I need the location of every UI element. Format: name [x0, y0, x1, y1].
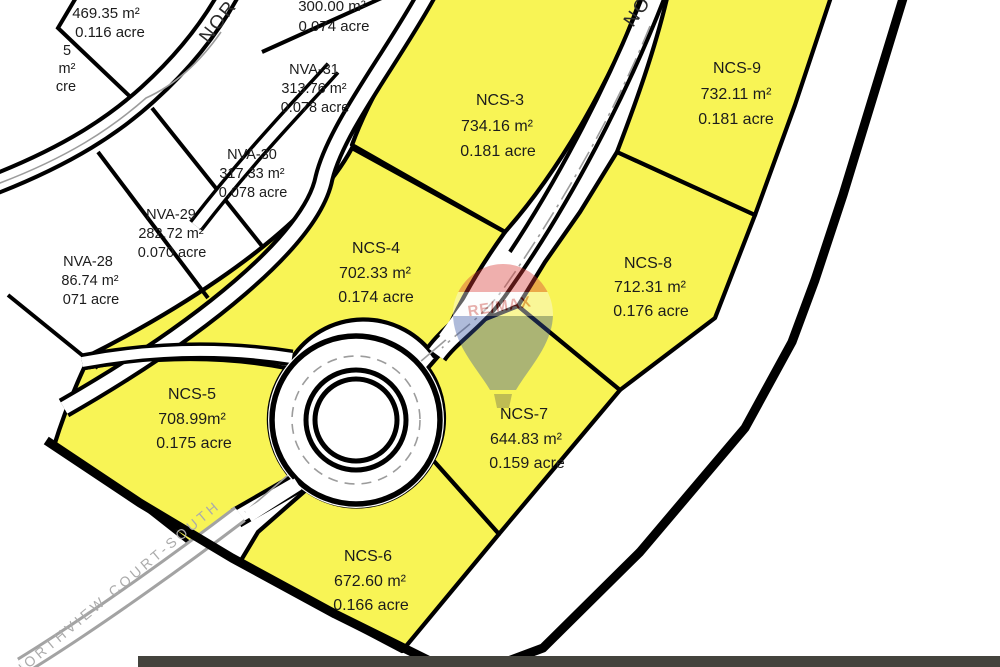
lot-ncs9-acreage: 0.181 acre [698, 111, 774, 128]
lot-nva30-id: NVA-30 [227, 147, 277, 163]
lot-nva30-area: 317.33 m² [219, 166, 284, 182]
lot-ncs8-acreage: 0.176 acre [613, 303, 689, 320]
plat-map-canvas: NOR NO NORTHVIEW COURT-SOUTH 5 m² cre 46… [0, 0, 1000, 667]
lot-ncs8-id: NCS-8 [624, 255, 672, 272]
lot-label-fragment-3: cre [56, 79, 76, 95]
lot-ncs5-acreage: 0.175 acre [156, 435, 232, 452]
lot-nva29-area: 282.72 m² [138, 226, 203, 242]
balloon-basket [494, 394, 512, 408]
lot-ncs3-acreage: 0.181 acre [460, 143, 536, 160]
lot-nva29-acreage: 0.070 acre [138, 245, 207, 261]
lot-ncs5-id: NCS-5 [168, 386, 216, 403]
lot-ncs8-area: 712.31 m² [614, 279, 687, 296]
lot-label-fragment-2: m² [59, 61, 76, 77]
lot-ncs9-id: NCS-9 [713, 60, 761, 77]
roundabout-island-inner [315, 379, 397, 461]
lot-300-acreage: 0.074 acre [299, 18, 370, 35]
lot-ncs6-id: NCS-6 [344, 548, 392, 565]
lot-ncs7-acreage: 0.159 acre [489, 455, 565, 472]
lot-300-area: 300.00 m² [298, 0, 366, 15]
lot-ncs9-area: 732.11 m² [701, 86, 773, 103]
lot-ncs7-area: 644.83 m² [490, 431, 563, 448]
lot-ncs5-area: 708.99m² [158, 411, 226, 428]
lot-nva30-acreage: 0.078 acre [219, 185, 288, 201]
lot-ncs6-acreage: 0.166 acre [333, 597, 409, 614]
lot-ncs6-area: 672.60 m² [334, 573, 407, 590]
lot-nva31-acreage: 0.078 acre [281, 100, 350, 116]
plat-map: NOR NO NORTHVIEW COURT-SOUTH 5 m² cre 46… [0, 0, 1000, 667]
lot-nva28-acreage: 071 acre [63, 292, 119, 308]
lot-469-acreage: 0.116 acre [75, 24, 145, 41]
lot-nva31-id: NVA-31 [289, 62, 339, 78]
lot-ncs4-acreage: 0.174 acre [338, 289, 414, 306]
lot-ncs3-id: NCS-3 [476, 92, 524, 109]
lot-ncs7-id: NCS-7 [500, 406, 548, 423]
lot-469-area: 469.35 m² [72, 5, 140, 22]
lot-ncs4-area: 702.33 m² [339, 265, 412, 282]
lot-ncs3-area: 734.16 m² [461, 118, 534, 135]
lot-nva31-area: 313.76 m² [281, 81, 346, 97]
lot-nva29-id: NVA-29 [146, 207, 196, 223]
lot-nva28-id: NVA-28 [63, 254, 113, 270]
boundary-bottom-strip [138, 656, 1000, 667]
lot-label-fragment-1: 5 [63, 43, 71, 59]
lot-nva28-area: 86.74 m² [61, 273, 118, 289]
lot-ncs4-id: NCS-4 [352, 240, 400, 257]
